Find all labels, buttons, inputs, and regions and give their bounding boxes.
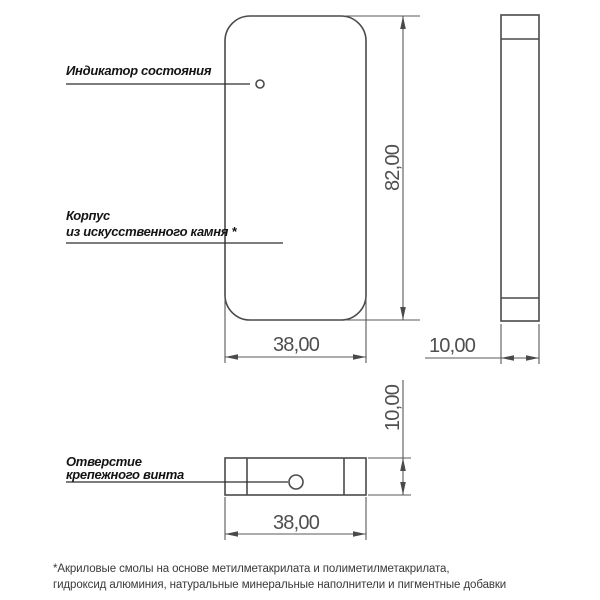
technical-drawing-page: 82,00 38,00 10,00 10,00 38,00 Индик bbox=[0, 0, 600, 600]
front-view bbox=[225, 16, 366, 320]
arrowhead-down bbox=[400, 482, 406, 495]
dimension-bottom-width: 38,00 bbox=[225, 497, 366, 540]
dimension-value-side-thickness: 10,00 bbox=[429, 335, 476, 357]
arrowhead-right bbox=[353, 531, 366, 537]
arrowhead-up bbox=[400, 458, 406, 471]
arrowhead-right bbox=[353, 354, 366, 360]
arrowhead-left bbox=[225, 354, 238, 360]
label-body-line1: Корпус bbox=[66, 208, 111, 223]
side-view bbox=[501, 15, 539, 321]
side-view-outline bbox=[501, 15, 539, 321]
dimension-value-front-width: 38,00 bbox=[273, 334, 320, 356]
arrowhead-left bbox=[225, 531, 238, 537]
engineering-drawing: 82,00 38,00 10,00 10,00 38,00 Индик bbox=[0, 0, 600, 600]
label-screw-hole-line2: крепежного винта bbox=[66, 467, 184, 482]
dimension-value-front-height: 82,00 bbox=[382, 144, 404, 191]
label-body-line2: из искусственного камня * bbox=[66, 224, 237, 239]
footnote-line2: гидроксид алюминия, натуральные минераль… bbox=[53, 579, 506, 591]
dimension-bottom-thickness: 10,00 bbox=[368, 380, 411, 495]
bottom-view bbox=[225, 458, 366, 495]
dimension-front-height: 82,00 bbox=[345, 16, 420, 320]
arrowhead-up bbox=[400, 16, 406, 29]
footnote-line1: *Акриловые смолы на основе метилметакрил… bbox=[53, 563, 449, 575]
front-view-outline bbox=[225, 16, 366, 320]
arrowhead-left bbox=[501, 355, 514, 361]
arrowhead-right bbox=[526, 355, 539, 361]
label-status-indicator: Индикатор состояния bbox=[66, 63, 212, 78]
arrowhead-down bbox=[400, 307, 406, 320]
dimension-value-bottom-thickness: 10,00 bbox=[382, 384, 404, 431]
status-indicator-dot bbox=[256, 80, 264, 88]
screw-hole-circle bbox=[289, 475, 303, 489]
dimension-side-thickness: 10,00 bbox=[425, 324, 539, 364]
dimension-front-width: 38,00 bbox=[225, 296, 366, 363]
dimension-value-bottom-width: 38,00 bbox=[273, 512, 320, 534]
